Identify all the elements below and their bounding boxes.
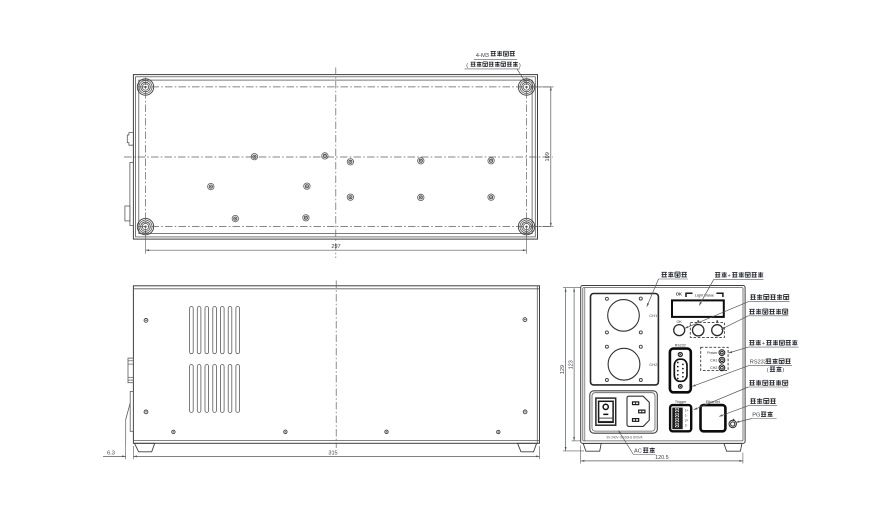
svg-text:AC: AC [634, 449, 642, 455]
svg-text:Power: Power [707, 351, 718, 355]
svg-text:CH2: CH2 [710, 366, 717, 370]
svg-text:(: ( [466, 63, 468, 69]
svg-text:2-: 2- [685, 424, 688, 428]
svg-text:123: 123 [568, 360, 574, 369]
svg-text:CH1: CH1 [649, 313, 658, 318]
svg-text:CH2: CH2 [649, 362, 658, 367]
svg-text:Light Value: Light Value [695, 293, 714, 298]
svg-text:2+: 2+ [685, 419, 689, 423]
svg-text:): ) [782, 368, 784, 374]
svg-text:4-M3: 4-M3 [476, 53, 489, 59]
svg-text:RS232: RS232 [750, 360, 767, 366]
svg-text:129: 129 [560, 365, 566, 374]
svg-text:CH1: CH1 [710, 359, 717, 363]
svg-text:): ) [519, 63, 521, 69]
svg-text:297: 297 [331, 244, 340, 250]
svg-text:RS232: RS232 [675, 344, 686, 348]
svg-text:+: + [728, 273, 731, 279]
svg-text:90-240V~50/60Hz 800VA: 90-240V~50/60Hz 800VA [606, 435, 643, 439]
svg-text:(: ( [767, 368, 769, 374]
svg-text:OK: OK [676, 292, 682, 297]
svg-text:120.5: 120.5 [655, 455, 669, 461]
svg-text:6.3: 6.3 [107, 451, 115, 457]
svg-text:1-: 1- [685, 414, 688, 418]
svg-text:+: + [762, 341, 765, 347]
svg-text:315: 315 [328, 450, 337, 456]
svg-text:PG: PG [752, 413, 760, 419]
svg-text:OK: OK [676, 320, 682, 324]
svg-text:1+: 1+ [685, 409, 689, 413]
svg-text:109: 109 [545, 152, 551, 161]
svg-text:Trigger: Trigger [675, 400, 687, 404]
